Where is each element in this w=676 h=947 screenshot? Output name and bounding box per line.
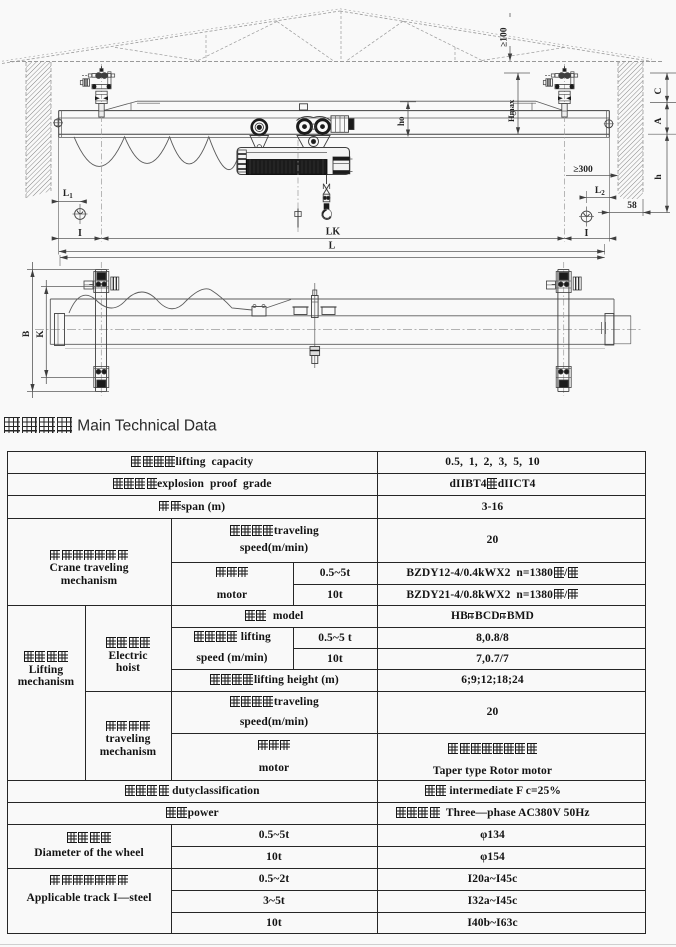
svg-text:A: A [654, 117, 664, 124]
svg-text:K: K [36, 330, 46, 338]
svg-text:58: 58 [627, 201, 637, 211]
svg-text:Hmax: Hmax [506, 99, 516, 122]
svg-text:≥100: ≥100 [500, 27, 510, 47]
svg-text:1: 1 [69, 192, 73, 200]
svg-text:2: 2 [601, 189, 605, 197]
svg-text:B: B [22, 330, 32, 337]
svg-text:ho: ho [396, 116, 406, 126]
svg-text:I: I [585, 228, 589, 239]
svg-text:L: L [63, 189, 69, 199]
svg-text:C: C [654, 87, 664, 94]
svg-text:L: L [329, 241, 336, 252]
svg-text:≥300: ≥300 [573, 165, 593, 175]
svg-text:I: I [78, 228, 82, 239]
svg-text:h: h [654, 174, 664, 180]
svg-text:LK: LK [326, 227, 341, 238]
svg-text:L: L [595, 186, 601, 196]
